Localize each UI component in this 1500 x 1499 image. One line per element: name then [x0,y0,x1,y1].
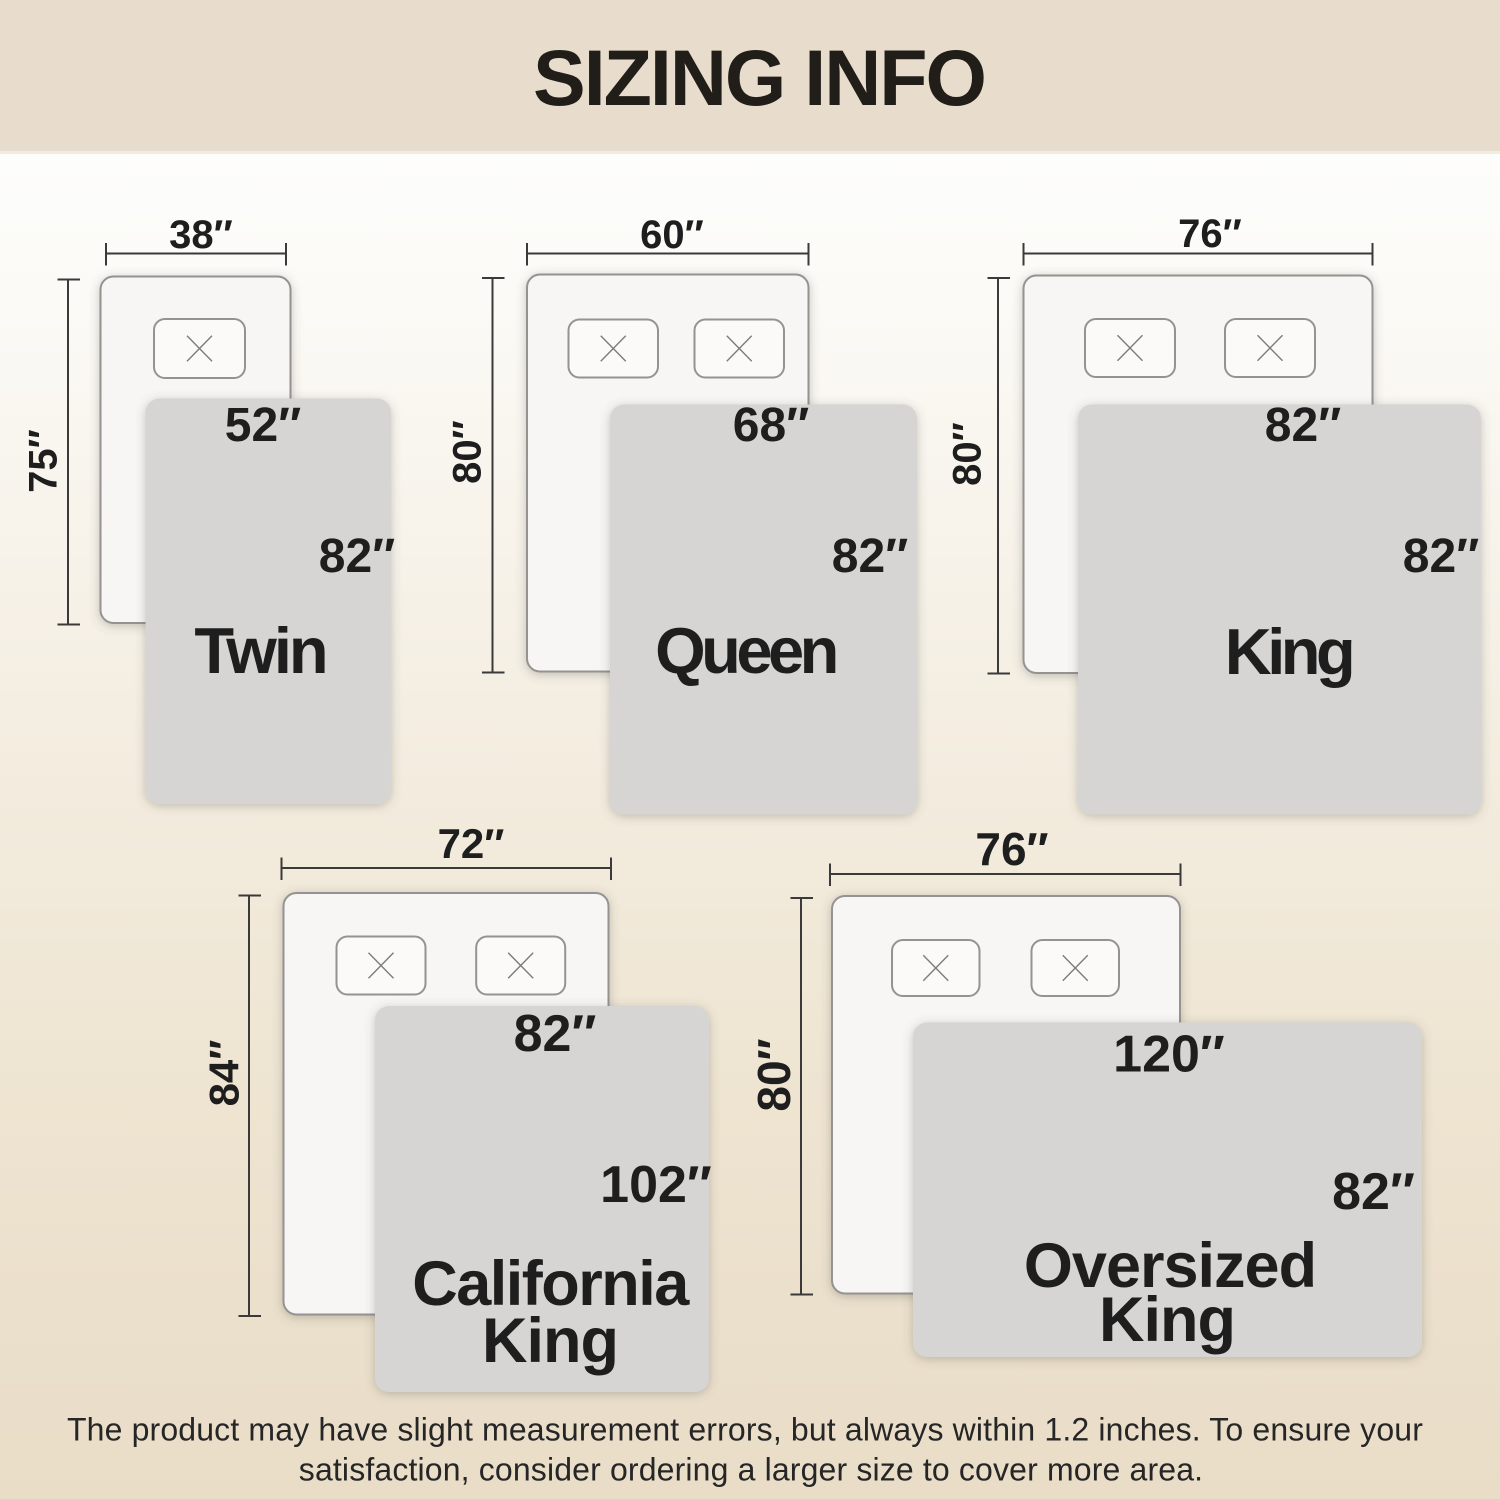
svg-text:75″: 75″ [22,429,66,493]
svg-text:80″: 80″ [946,422,990,486]
svg-text:76″: 76″ [1178,212,1242,256]
svg-text:82″: 82″ [514,1005,597,1063]
svg-text:52″: 52″ [225,399,301,452]
svg-text:80″: 80″ [748,1038,800,1111]
svg-text:82″: 82″ [1403,530,1479,583]
svg-text:68″: 68″ [733,399,809,452]
svg-text:82″: 82″ [1332,1163,1415,1221]
svg-text:82″: 82″ [319,530,395,583]
svg-text:satisfaction, consider orderin: satisfaction, consider ordering a larger… [299,1452,1203,1488]
svg-text:60″: 60″ [640,213,704,257]
svg-text:The product may have slight me: The product may have slight measurement … [67,1412,1423,1448]
svg-text:82″: 82″ [1265,399,1341,452]
svg-text:76″: 76″ [975,823,1048,875]
svg-text:102″: 102″ [600,1156,712,1214]
svg-text:72″: 72″ [438,820,505,867]
svg-text:80″: 80″ [446,420,490,484]
svg-text:38″: 38″ [169,213,233,257]
svg-text:82″: 82″ [832,530,908,583]
svg-text:84″: 84″ [200,1040,247,1107]
svg-text:King: King [1099,1285,1235,1355]
svg-text:SIZING INFO: SIZING INFO [533,33,985,122]
svg-text:King: King [1225,615,1352,688]
svg-text:Twin: Twin [194,614,325,687]
svg-text:Queen: Queen [655,614,836,687]
svg-text:King: King [482,1306,618,1376]
svg-text:120″: 120″ [1113,1026,1225,1084]
